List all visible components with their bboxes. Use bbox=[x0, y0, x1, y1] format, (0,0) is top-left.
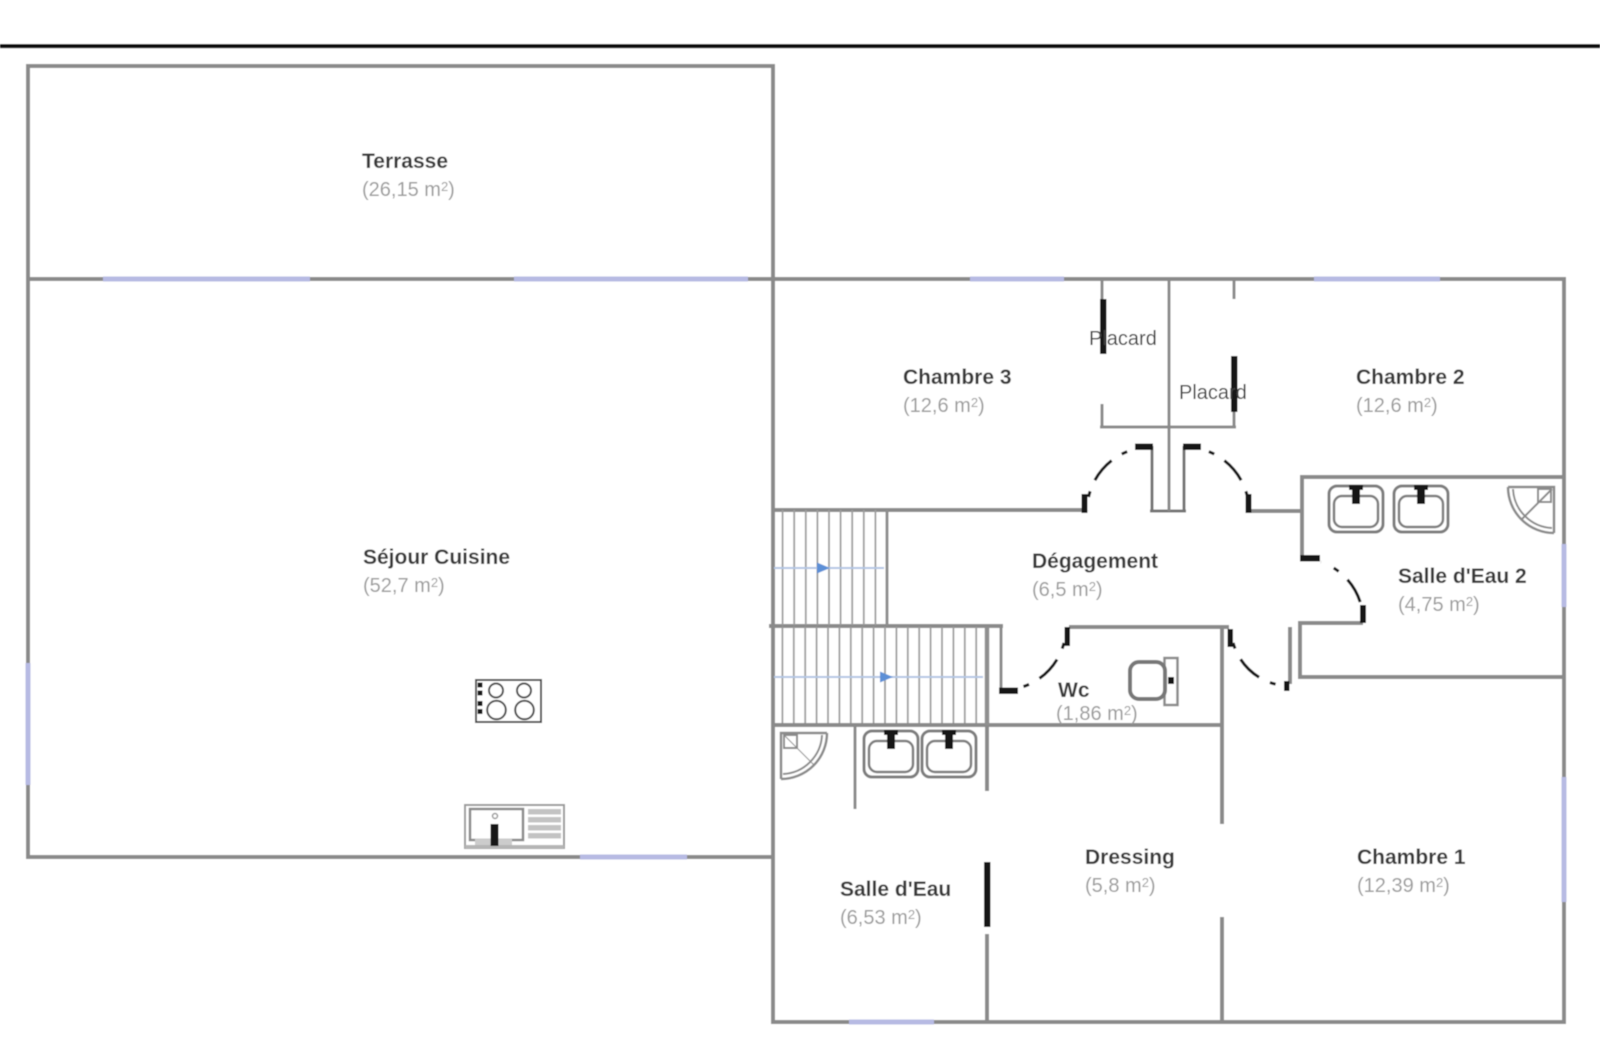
svg-text:Placard: Placard bbox=[1089, 328, 1157, 350]
svg-text:Terrasse: Terrasse bbox=[362, 150, 448, 173]
svg-text:Salle d'Eau: Salle d'Eau bbox=[840, 878, 951, 901]
svg-text:Dégagement: Dégagement bbox=[1032, 550, 1158, 573]
svg-text:Chambre 3: Chambre 3 bbox=[903, 366, 1012, 389]
svg-text:Chambre 1: Chambre 1 bbox=[1357, 846, 1466, 869]
svg-text:Dressing: Dressing bbox=[1085, 846, 1175, 869]
svg-text:Wc: Wc bbox=[1058, 679, 1090, 702]
svg-text:(26,15 m2): (26,15 m2) bbox=[362, 179, 455, 201]
svg-text:Placard: Placard bbox=[1179, 382, 1247, 404]
svg-text:Séjour Cuisine: Séjour Cuisine bbox=[363, 546, 510, 569]
svg-text:(12,39 m2): (12,39 m2) bbox=[1357, 875, 1450, 897]
svg-text:Salle d'Eau 2: Salle d'Eau 2 bbox=[1398, 565, 1527, 588]
svg-text:Chambre 2: Chambre 2 bbox=[1356, 366, 1465, 389]
